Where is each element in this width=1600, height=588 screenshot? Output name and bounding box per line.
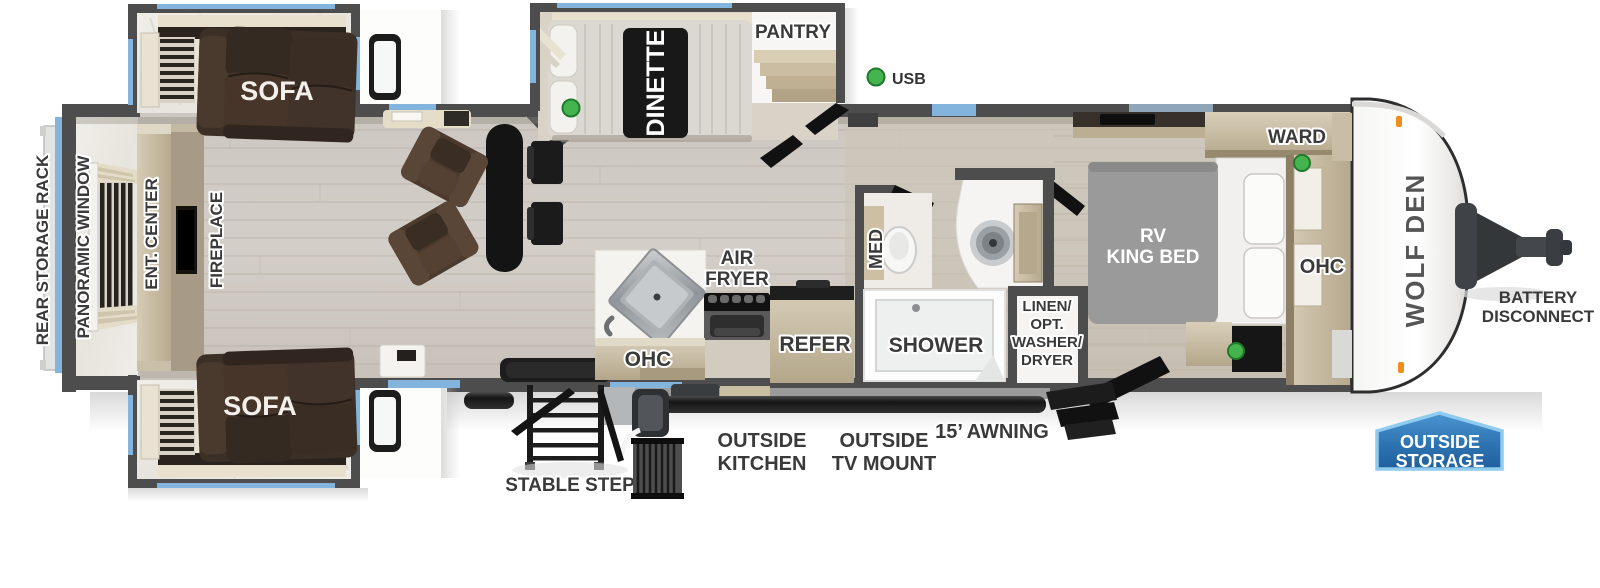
svg-text:DRYER: DRYER xyxy=(1021,352,1073,369)
svg-text:WARD: WARD xyxy=(1268,127,1326,148)
svg-text:KING BED: KING BED xyxy=(1107,247,1200,268)
svg-text:OUTSIDE: OUTSIDE xyxy=(1400,432,1480,452)
svg-text:STABLE STEP: STABLE STEP xyxy=(505,475,635,496)
svg-text:WASHER/: WASHER/ xyxy=(1012,334,1083,351)
svg-text:DISCONNECT: DISCONNECT xyxy=(1482,307,1595,326)
svg-text:REAR STORAGE RACK: REAR STORAGE RACK xyxy=(33,154,52,345)
svg-text:RV: RV xyxy=(1140,226,1166,247)
svg-text:LINEN/: LINEN/ xyxy=(1022,298,1072,315)
svg-text:FRYER: FRYER xyxy=(705,269,769,290)
svg-text:OUTSIDE: OUTSIDE xyxy=(718,430,807,452)
svg-text:OUTSIDE: OUTSIDE xyxy=(840,430,929,452)
svg-text:SOFA: SOFA xyxy=(223,391,297,421)
svg-text:FIREPLACE: FIREPLACE xyxy=(207,192,226,288)
svg-text:BATTERY: BATTERY xyxy=(1499,288,1578,307)
svg-text:PANTRY: PANTRY xyxy=(755,22,831,43)
svg-text:MED: MED xyxy=(866,229,886,269)
svg-text:PANORAMIC WINDOW: PANORAMIC WINDOW xyxy=(74,155,93,339)
svg-text:REFER: REFER xyxy=(779,333,850,356)
svg-text:OHC: OHC xyxy=(625,348,672,371)
svg-text:OPT.: OPT. xyxy=(1030,316,1063,333)
svg-text:TV MOUNT: TV MOUNT xyxy=(832,453,936,475)
svg-text:ENT. CENTER: ENT. CENTER xyxy=(142,178,161,289)
svg-text:AIR: AIR xyxy=(721,248,754,269)
svg-text:STORAGE: STORAGE xyxy=(1396,451,1485,471)
svg-text:WOLF DEN: WOLF DEN xyxy=(1400,173,1430,328)
svg-text:SHOWER: SHOWER xyxy=(889,334,984,357)
svg-text:USB: USB xyxy=(892,71,926,88)
svg-text:KITCHEN: KITCHEN xyxy=(718,453,807,475)
svg-text:OHC: OHC xyxy=(1300,256,1344,278)
svg-text:DINETTE: DINETTE xyxy=(642,30,670,137)
svg-text:SOFA: SOFA xyxy=(240,76,314,106)
svg-text:15’ AWNING: 15’ AWNING xyxy=(935,421,1049,443)
